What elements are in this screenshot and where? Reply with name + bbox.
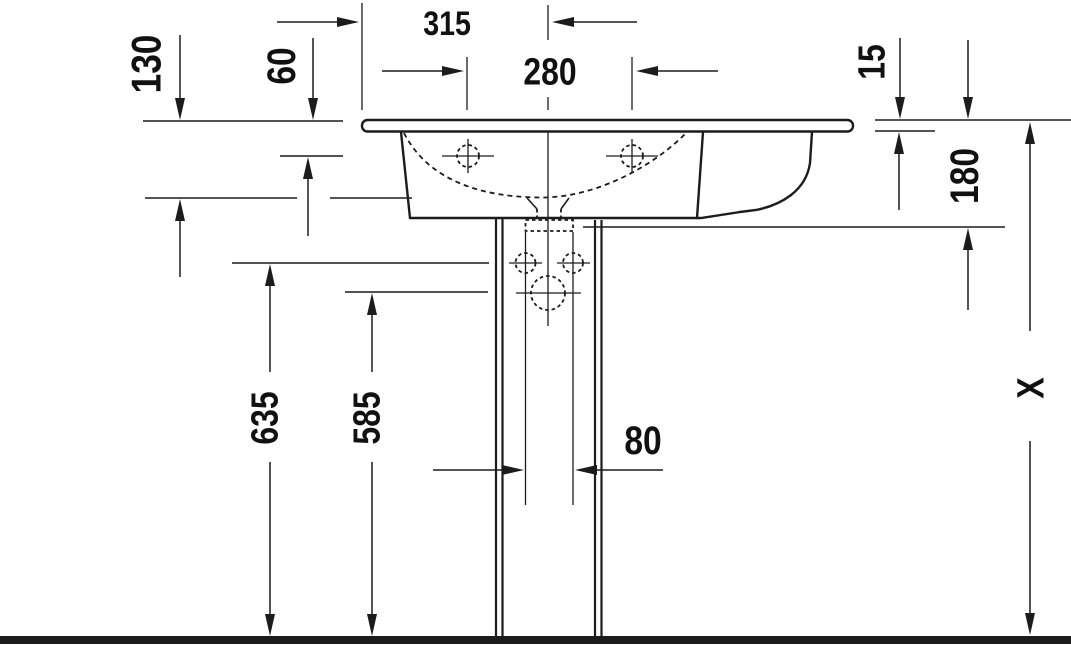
technical-drawing-page: 315 280 130 60 15 180 635 585 80 X (0, 0, 1071, 646)
dim-label-80: 80 (624, 418, 661, 462)
dim-label-130: 130 (124, 35, 171, 94)
dim-label-15: 15 (851, 44, 893, 80)
dim-label-635: 635 (244, 391, 286, 444)
dim-label-280: 280 (523, 51, 576, 93)
canvas-background (0, 0, 1071, 646)
washbasin-technical-drawing: 315 280 130 60 15 180 635 585 80 X (0, 0, 1071, 646)
dim-label-315: 315 (423, 5, 471, 43)
dim-label-180: 180 (942, 148, 986, 204)
dim-label-585: 585 (346, 391, 388, 444)
dim-label-x: X (1010, 377, 1052, 399)
dim-label-60: 60 (259, 47, 303, 84)
floor-line (0, 636, 1071, 644)
